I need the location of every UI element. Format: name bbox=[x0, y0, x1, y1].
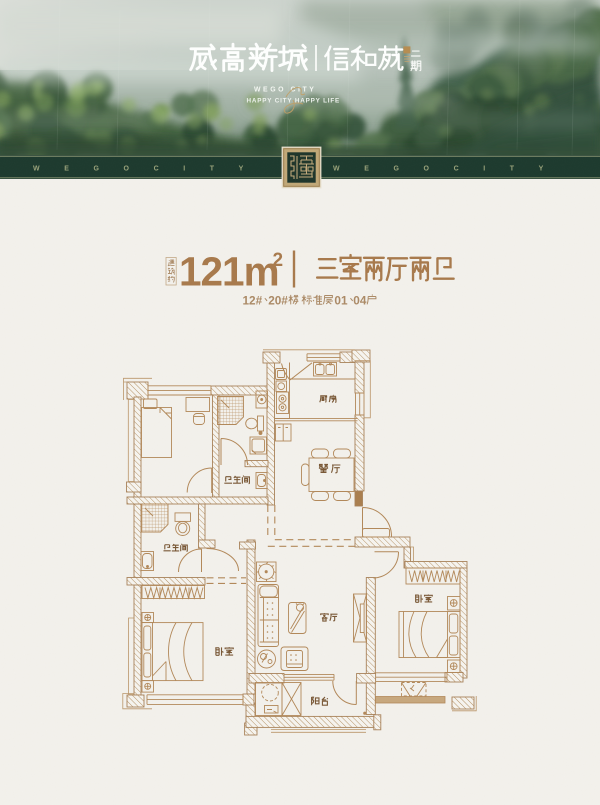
svg-text:WEGO CITY: WEGO CITY bbox=[254, 87, 316, 94]
svg-text:HAPPY CITY HAPPY LIFE: HAPPY CITY HAPPY LIFE bbox=[247, 98, 341, 105]
